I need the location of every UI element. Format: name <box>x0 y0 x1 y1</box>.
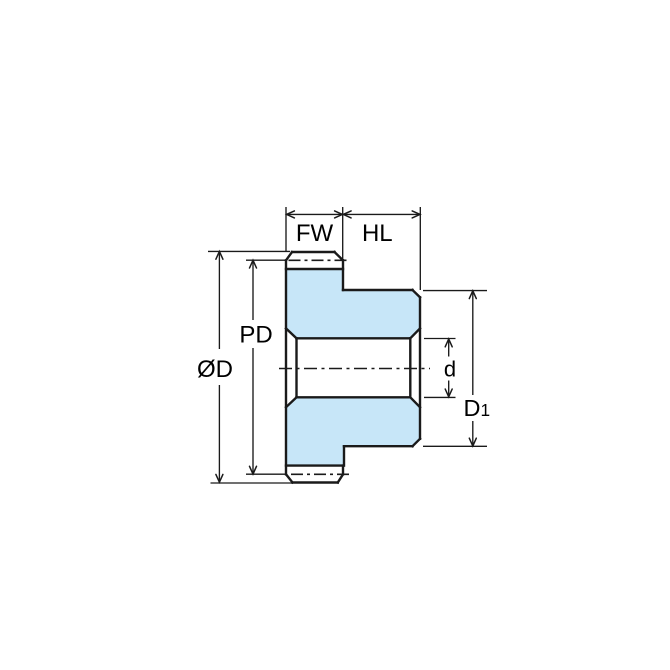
svg-text:HL: HL <box>362 220 393 247</box>
svg-text:FW: FW <box>296 220 334 247</box>
svg-text:ØD: ØD <box>197 356 233 383</box>
svg-text:PD: PD <box>239 322 272 349</box>
svg-text:d: d <box>444 357 456 382</box>
